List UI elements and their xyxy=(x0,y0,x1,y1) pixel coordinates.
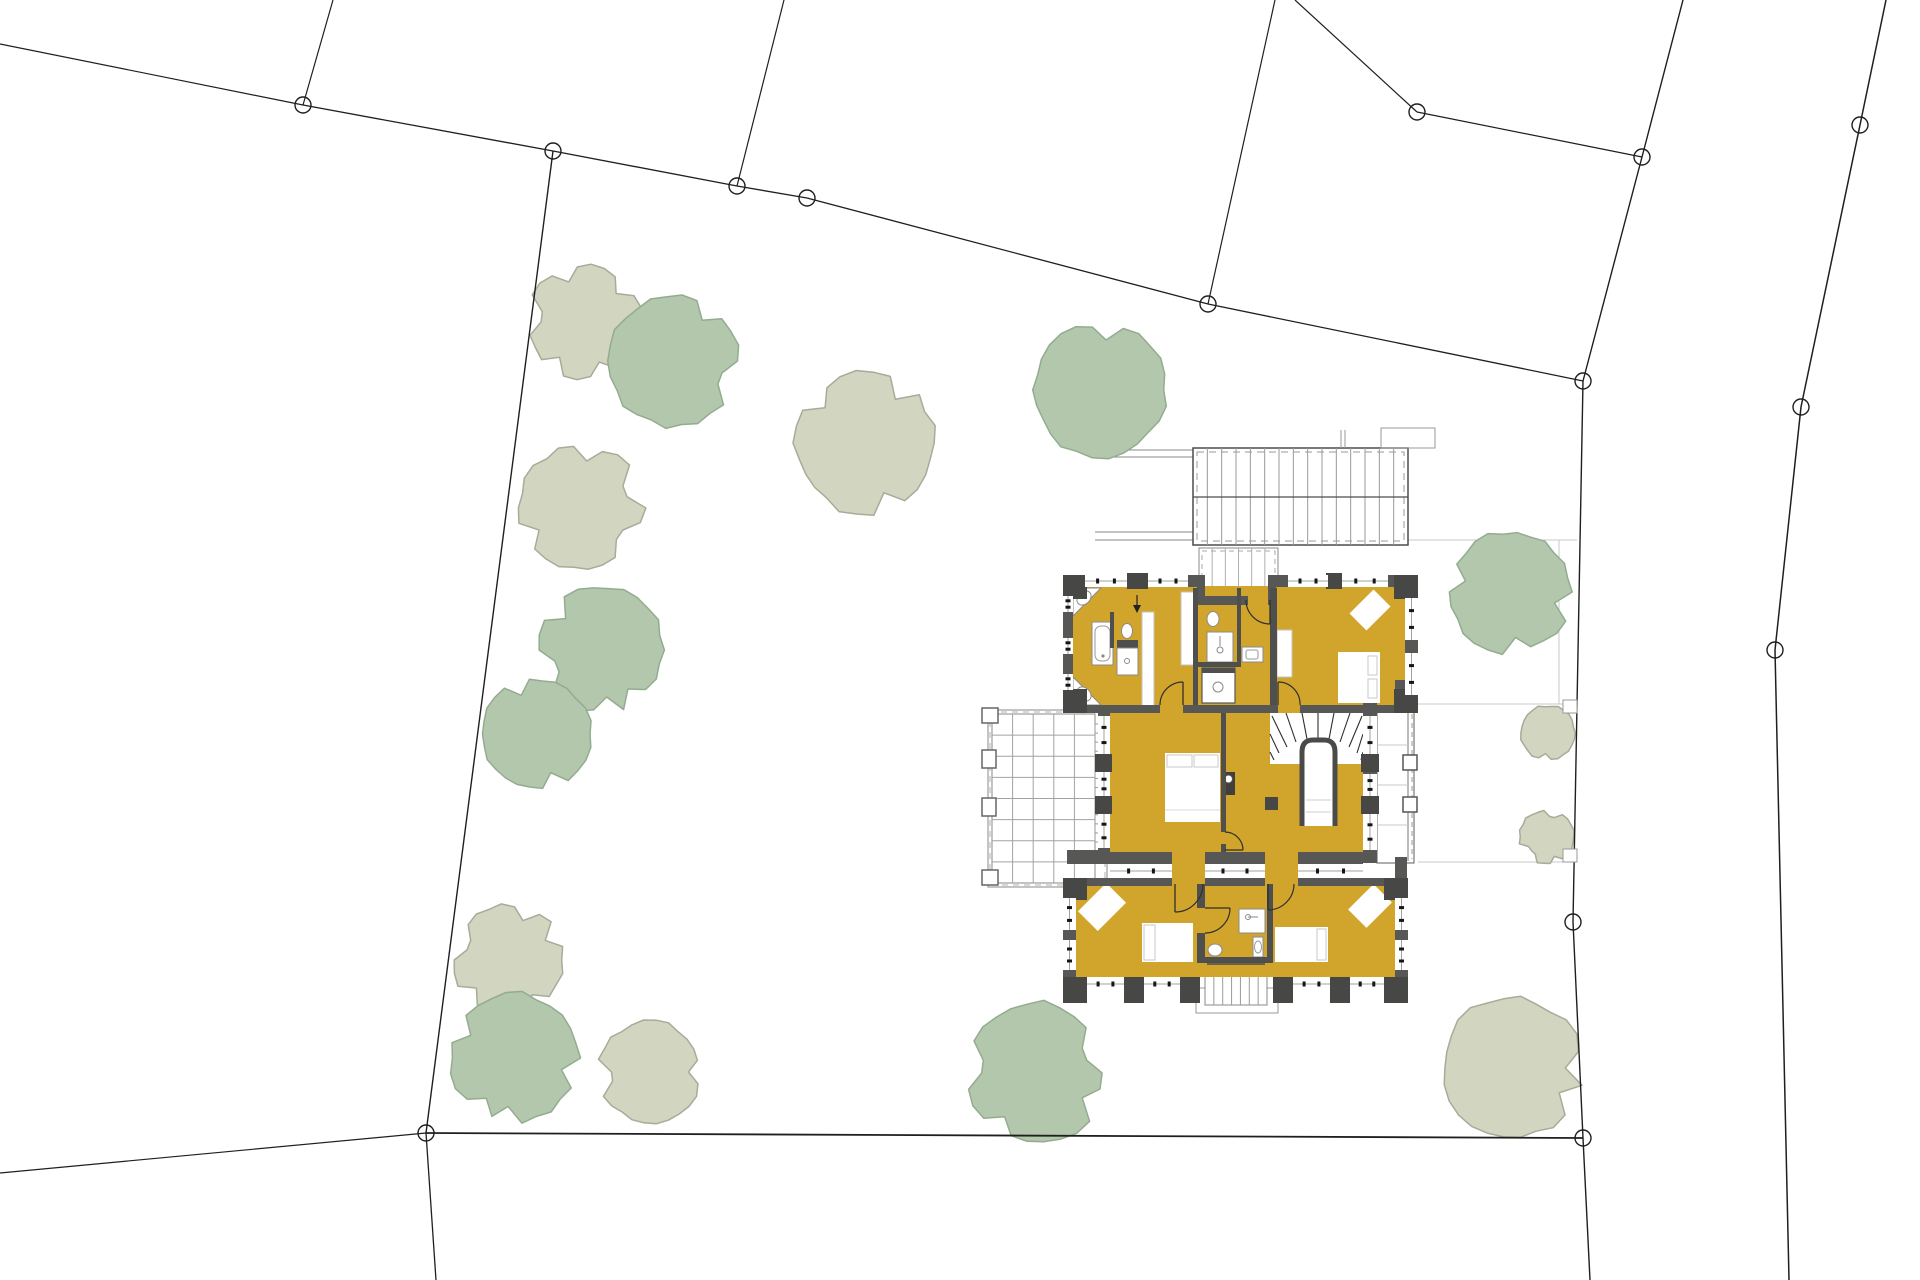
pier xyxy=(1394,575,1418,599)
tree-beige xyxy=(1521,706,1576,759)
mullion-tick xyxy=(1317,982,1320,987)
bed-pillow xyxy=(1368,679,1377,698)
stair-well xyxy=(1302,740,1335,826)
boundary-segment xyxy=(0,44,303,105)
wall xyxy=(1205,852,1265,864)
boundary-segment xyxy=(303,0,333,105)
mullion-tick xyxy=(1342,869,1345,874)
window xyxy=(1293,977,1330,991)
mullion-tick xyxy=(1354,579,1357,584)
pier xyxy=(1384,977,1408,1003)
mullion-tick xyxy=(1152,869,1155,874)
floor-door-gap xyxy=(1278,705,1300,713)
mullion-tick xyxy=(1066,684,1071,687)
mullion-tick xyxy=(1373,579,1376,584)
mullion-tick xyxy=(1102,778,1107,781)
mullion-tick xyxy=(1409,609,1414,612)
boundary-segment xyxy=(1208,304,1583,381)
mullion-tick xyxy=(1067,906,1072,909)
window xyxy=(1063,940,1076,970)
bed-pillow xyxy=(1194,755,1218,767)
mullion-tick xyxy=(1102,823,1107,826)
closet xyxy=(1277,630,1292,677)
boundary-segment xyxy=(807,198,1208,304)
mullion-tick xyxy=(1168,982,1171,987)
window xyxy=(1363,814,1377,850)
mullion-tick xyxy=(1067,919,1072,922)
window xyxy=(1063,638,1073,654)
mullion-tick xyxy=(1399,906,1404,909)
partition xyxy=(1221,713,1226,832)
partition xyxy=(1110,612,1114,648)
mullion-tick xyxy=(1066,648,1071,651)
mullion-tick xyxy=(1066,677,1071,680)
mullion-tick xyxy=(1175,579,1178,584)
site-plan-drawing xyxy=(0,0,1920,1280)
floor-south-wing xyxy=(1076,884,1395,977)
mullion-tick xyxy=(1372,982,1375,987)
pier xyxy=(1384,878,1408,900)
pier xyxy=(1330,977,1350,1003)
boundary-segment xyxy=(1860,0,1886,125)
boundary-segment xyxy=(0,1133,426,1173)
low-window-band xyxy=(1205,864,1265,878)
mullion-tick xyxy=(1102,787,1107,790)
floor-door-gap xyxy=(1265,852,1298,884)
pier xyxy=(1095,796,1112,814)
partition xyxy=(1197,957,1273,963)
window xyxy=(1395,940,1408,970)
wall xyxy=(1067,850,1110,864)
mullion-tick xyxy=(1409,626,1414,629)
mullion-tick xyxy=(1067,960,1072,963)
mullion-tick xyxy=(1113,579,1116,584)
boundary-segment xyxy=(1583,157,1642,381)
boundary-segment xyxy=(553,151,737,186)
window xyxy=(1395,898,1408,930)
mullion-tick xyxy=(1159,579,1162,584)
mullion-tick xyxy=(1399,919,1404,922)
window xyxy=(1098,814,1110,848)
pier xyxy=(1063,689,1087,713)
terrace-post xyxy=(982,708,998,723)
counter xyxy=(1242,647,1263,662)
wall xyxy=(1110,852,1172,864)
wall xyxy=(1183,705,1278,713)
mullion-tick xyxy=(1359,982,1362,987)
mullion-tick xyxy=(1066,641,1071,644)
mullion-tick xyxy=(1096,579,1099,584)
pier xyxy=(1361,754,1379,772)
mullion-tick xyxy=(1111,982,1114,987)
shower-tray xyxy=(1239,909,1265,933)
tree-beige xyxy=(1444,996,1582,1137)
mullion-tick xyxy=(1409,664,1414,667)
window xyxy=(1350,977,1384,991)
tree-beige xyxy=(518,446,646,569)
bed-pillow xyxy=(1317,929,1326,960)
boundary-segment xyxy=(1801,125,1860,407)
tree-sage xyxy=(969,1000,1103,1142)
mullion-tick xyxy=(1368,779,1373,782)
boundary-segment xyxy=(303,105,553,151)
pier xyxy=(1095,754,1112,772)
mullion-tick xyxy=(1368,823,1373,826)
window xyxy=(1342,575,1388,587)
window xyxy=(1144,977,1180,991)
tree-beige xyxy=(599,1020,699,1124)
boundary-segment xyxy=(1775,650,1789,1280)
partition xyxy=(1270,588,1277,705)
boundary-segment xyxy=(1417,112,1642,157)
pier xyxy=(1124,977,1144,1003)
east-balcony xyxy=(1377,701,1417,863)
pier xyxy=(1063,878,1087,900)
wall-recess xyxy=(1203,596,1248,605)
mullion-tick xyxy=(1097,982,1100,987)
pier xyxy=(1063,575,1087,599)
window xyxy=(1405,598,1418,640)
wall xyxy=(1205,878,1265,886)
bathtub-drain xyxy=(1101,654,1104,657)
wall xyxy=(1298,852,1363,864)
hall-column xyxy=(1265,797,1278,810)
toilet xyxy=(1207,612,1219,627)
mullion-tick xyxy=(1315,579,1318,584)
access-structures xyxy=(1095,428,1435,598)
mullion-tick xyxy=(1399,948,1404,951)
mullion-tick xyxy=(1102,741,1107,744)
floor-door-gap xyxy=(1172,852,1205,884)
low-window-band xyxy=(1298,864,1363,878)
window xyxy=(1288,575,1328,587)
mullion-tick xyxy=(1368,741,1373,744)
mullion-tick xyxy=(1127,869,1130,874)
balcony-post xyxy=(1403,797,1417,812)
mullion-tick xyxy=(1067,948,1072,951)
boundary-segment xyxy=(737,186,807,198)
pier xyxy=(1180,977,1200,1003)
window xyxy=(1363,716,1377,754)
tree-sage xyxy=(451,991,581,1123)
terrace-post xyxy=(982,798,996,816)
vanity xyxy=(1117,648,1138,675)
mullion-tick xyxy=(1368,838,1373,841)
mullion-tick xyxy=(1399,960,1404,963)
mullion-tick xyxy=(1222,869,1225,874)
toilet xyxy=(1208,944,1222,956)
closet xyxy=(1181,592,1195,665)
partition xyxy=(1193,588,1198,705)
pier xyxy=(1063,977,1087,1003)
fence-post xyxy=(1563,849,1577,862)
boundary-segment xyxy=(426,1133,1583,1138)
mullion-tick xyxy=(1299,579,1302,584)
bed-pillow xyxy=(1167,755,1192,767)
terrace-post xyxy=(982,750,996,768)
mullion-tick xyxy=(1153,982,1156,987)
bed-pillow xyxy=(1368,656,1377,675)
mullion-tick xyxy=(1409,681,1414,684)
mullion-tick xyxy=(1303,982,1306,987)
mullion-tick xyxy=(1368,726,1373,729)
mullion-tick xyxy=(1368,788,1373,791)
window xyxy=(1063,898,1076,930)
shower-edge xyxy=(1202,668,1235,673)
window xyxy=(1085,575,1127,587)
partition xyxy=(1237,588,1241,667)
boundary-segment xyxy=(1208,0,1275,304)
window xyxy=(1405,653,1418,695)
low-window-band xyxy=(1110,864,1172,878)
wall xyxy=(1197,575,1205,605)
tree-sage xyxy=(1033,327,1167,459)
boundary-segment xyxy=(737,0,784,186)
window xyxy=(1063,596,1073,612)
boundary-segment xyxy=(426,1133,436,1280)
toilet xyxy=(1122,624,1133,639)
wall xyxy=(1300,705,1410,713)
pier xyxy=(1326,573,1342,589)
mullion-tick xyxy=(1316,869,1319,874)
mullion-tick xyxy=(1066,599,1071,602)
boundary-segment xyxy=(1295,0,1417,112)
tree-beige xyxy=(793,371,935,516)
site-plan-page xyxy=(0,0,1920,1280)
mullion-tick xyxy=(1246,869,1249,874)
boundary-segment xyxy=(1775,407,1801,650)
window xyxy=(1148,575,1188,587)
partition xyxy=(1221,844,1226,852)
toilet-partition xyxy=(1117,640,1138,648)
boundary-segment xyxy=(1583,1138,1590,1280)
window xyxy=(1087,977,1124,991)
boundary-segment xyxy=(1642,0,1683,157)
terrace-post xyxy=(982,870,998,885)
tree-sage xyxy=(1449,533,1572,655)
bed-pillow xyxy=(1144,925,1155,960)
balcony-post xyxy=(1403,755,1417,770)
mullion-tick xyxy=(1102,726,1107,729)
property-boundary xyxy=(0,0,1886,1280)
floor-door-gap xyxy=(1160,705,1183,713)
partition xyxy=(1197,662,1241,667)
boundary-segment xyxy=(1573,381,1583,922)
closet xyxy=(1142,612,1154,706)
mullion-tick xyxy=(1066,606,1071,609)
window xyxy=(1098,772,1110,796)
deck-side-platform xyxy=(1381,428,1435,448)
window xyxy=(1063,674,1073,690)
pier xyxy=(1127,573,1148,589)
shower xyxy=(1202,668,1235,703)
pier xyxy=(1361,796,1379,814)
mullion-tick xyxy=(1102,836,1107,839)
fence-post xyxy=(1563,700,1577,713)
window xyxy=(1098,716,1110,754)
pier xyxy=(1273,977,1293,1003)
window xyxy=(1363,774,1377,796)
